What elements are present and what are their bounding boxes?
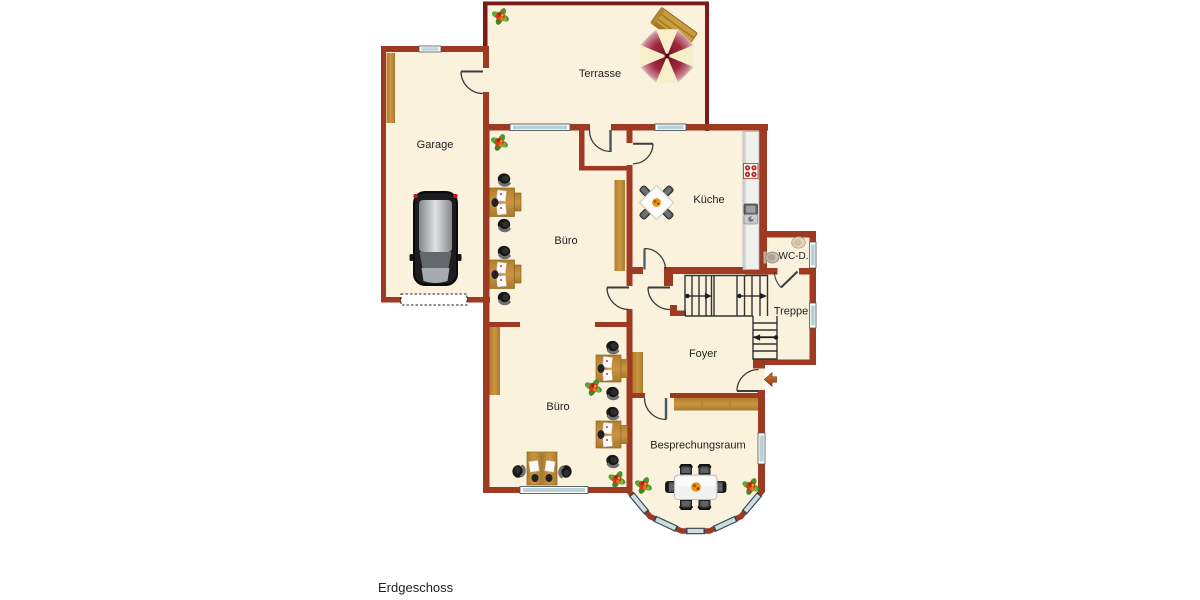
- svg-text:Besprechungsraum: Besprechungsraum: [650, 440, 745, 452]
- svg-text:WC-D.: WC-D.: [779, 251, 809, 262]
- svg-text:Büro: Büro: [546, 401, 569, 413]
- svg-text:Küche: Küche: [693, 194, 724, 206]
- svg-text:Garage: Garage: [417, 139, 454, 151]
- svg-text:Büro: Büro: [554, 235, 577, 247]
- svg-text:Erdgeschoss: Erdgeschoss: [378, 580, 454, 595]
- svg-text:Treppe: Treppe: [774, 306, 808, 318]
- svg-text:Foyer: Foyer: [689, 348, 717, 360]
- svg-text:Terrasse: Terrasse: [579, 68, 621, 80]
